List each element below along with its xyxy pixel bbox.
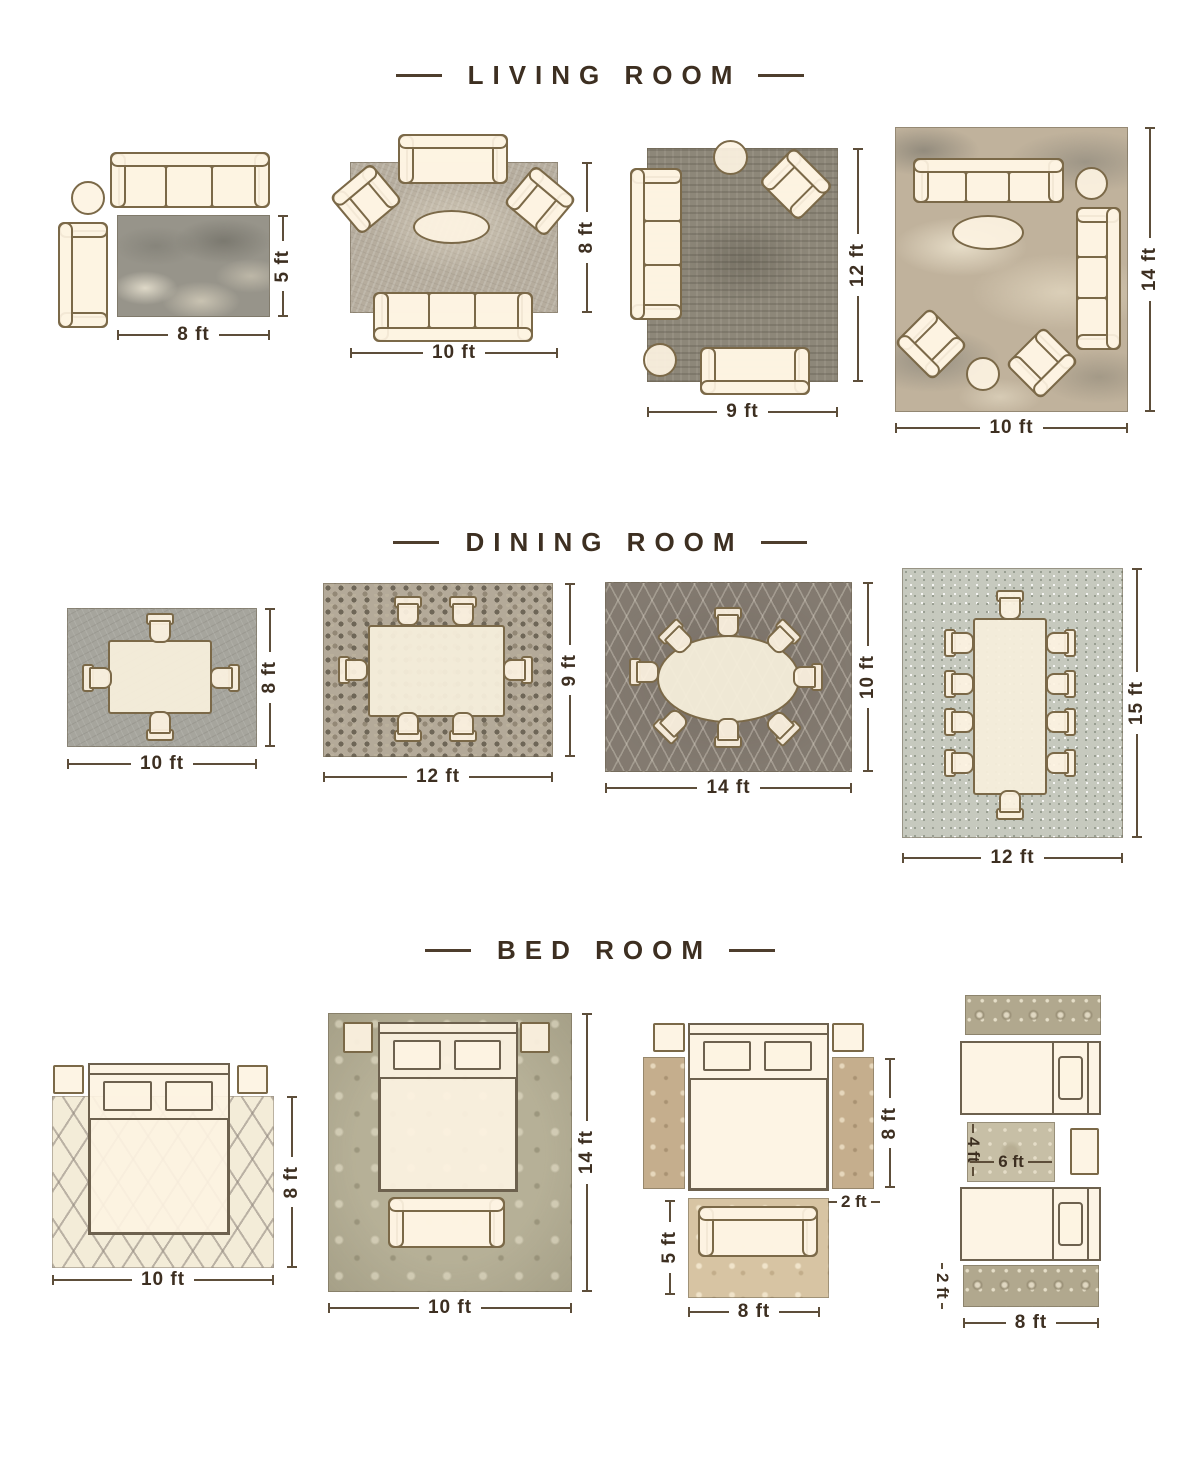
three-seat-sofa bbox=[110, 152, 270, 208]
three-seat-sofa-vertical bbox=[630, 168, 682, 320]
twin-bed bbox=[960, 1187, 1101, 1261]
rug-width-dimension: 10 ft bbox=[328, 1296, 572, 1320]
foot-rug-height-dimension: 5 ft bbox=[658, 1200, 682, 1295]
twin-bed bbox=[960, 1041, 1101, 1115]
nightstand bbox=[343, 1022, 373, 1053]
runner-top bbox=[965, 995, 1101, 1035]
nightstand bbox=[653, 1023, 685, 1052]
rug-height-dimension: 8 ft bbox=[280, 1096, 304, 1268]
runner-width-dimension: 2 ft bbox=[828, 1192, 880, 1212]
bed-room-section: BED ROOM 8 ft 10 ft 14 ft 10 ft 8 ft 2 f… bbox=[0, 0, 1200, 1467]
three-seat-sofa bbox=[373, 292, 533, 342]
bed bbox=[378, 1022, 518, 1192]
bedside-runner-left bbox=[643, 1057, 685, 1189]
title-dash-right bbox=[729, 949, 775, 952]
three-seat-sofa-vertical bbox=[1076, 207, 1121, 350]
three-seat-sofa bbox=[913, 158, 1064, 203]
nightstand bbox=[520, 1022, 550, 1053]
bench bbox=[388, 1197, 505, 1248]
center-rug-width-dimension: 6 ft bbox=[970, 1152, 1052, 1172]
runner-length-dimension: 8 ft bbox=[878, 1058, 902, 1188]
section-title-text: BED ROOM bbox=[497, 935, 712, 966]
loveseat-bottom bbox=[700, 347, 810, 395]
rug-height-dimension: 14 ft bbox=[575, 1013, 599, 1292]
foot-rug-width-dimension: 8 ft bbox=[688, 1300, 820, 1324]
bedside-runner-right bbox=[832, 1057, 874, 1189]
title-dash-left bbox=[425, 949, 471, 952]
bed bbox=[88, 1063, 230, 1235]
nightstand bbox=[1070, 1128, 1099, 1175]
nightstand bbox=[237, 1065, 268, 1094]
bed bbox=[688, 1023, 829, 1191]
loveseat-top bbox=[398, 134, 508, 184]
bed-room-title: BED ROOM bbox=[0, 935, 1200, 966]
runner-width-dimension: 8 ft bbox=[963, 1311, 1099, 1335]
rug-width-dimension: 10 ft bbox=[52, 1268, 274, 1292]
nightstand bbox=[53, 1065, 84, 1094]
runner-bottom bbox=[963, 1265, 1099, 1307]
loveseat-vertical bbox=[58, 222, 108, 328]
nightstand bbox=[832, 1023, 864, 1052]
bench bbox=[698, 1206, 818, 1257]
runner-height-dimension: 2 ft bbox=[932, 1263, 952, 1309]
